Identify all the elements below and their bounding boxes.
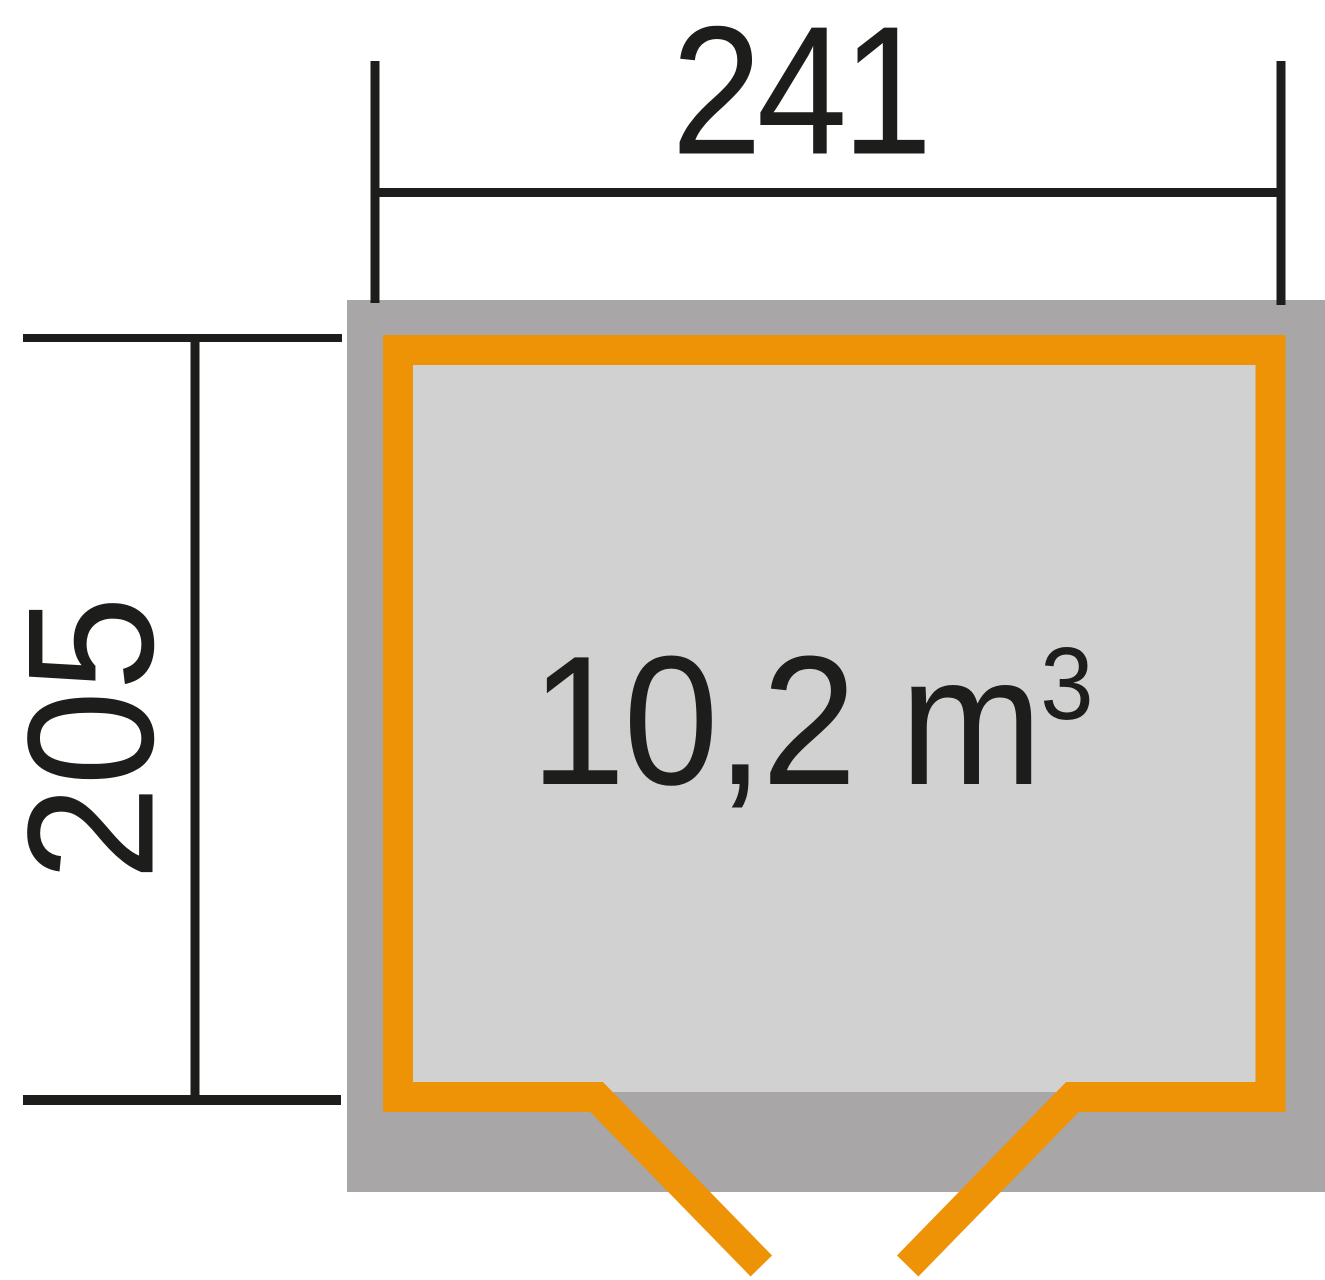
- svg-text:241: 241: [671, 0, 927, 193]
- svg-text:205: 205: [0, 596, 191, 881]
- svg-text:10,2 m3: 10,2 m3: [530, 617, 1091, 823]
